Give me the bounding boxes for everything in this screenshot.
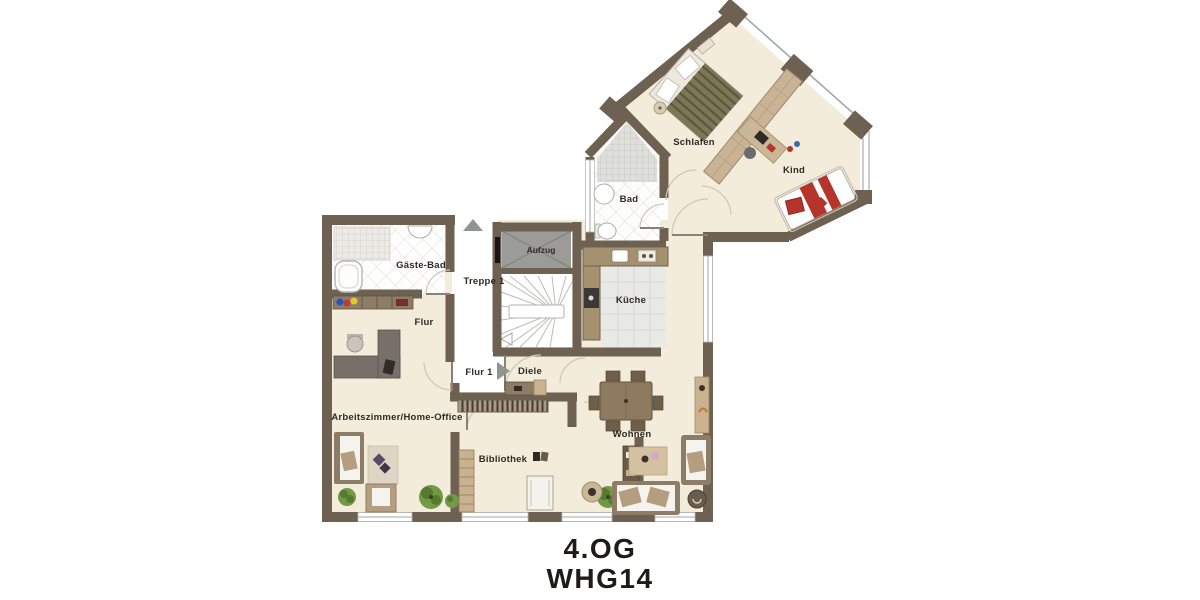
kitchen-floor bbox=[602, 266, 666, 348]
sofa bbox=[612, 481, 680, 515]
room-label-flur: Flur bbox=[415, 317, 434, 328]
floorplan-page: Schlafen Kind Bad Aufzug Treppe 1 Gäste-… bbox=[0, 0, 1200, 600]
office-sofa bbox=[334, 432, 364, 484]
coffee-table bbox=[629, 447, 667, 475]
room-label-kind: Kind bbox=[783, 165, 805, 176]
room-label-gaeste-bad: Gäste-Bad bbox=[396, 260, 446, 271]
lounge-armchair bbox=[681, 435, 711, 485]
sink bbox=[594, 184, 614, 204]
room-label-flur1: Flur 1 bbox=[465, 367, 493, 378]
unit-title: WHG14 bbox=[546, 563, 653, 594]
rug bbox=[368, 446, 398, 484]
entry-sideboard bbox=[505, 380, 546, 395]
room-label-wohnen: Wohnen bbox=[613, 429, 652, 440]
room-label-schlafen: Schlafen bbox=[673, 137, 715, 148]
room-label-arbeitszimmer: Arbeitszimmer/Home-Office bbox=[331, 412, 462, 423]
side-table bbox=[688, 490, 706, 508]
room-label-treppe: Treppe 1 bbox=[463, 276, 505, 287]
elevator-door bbox=[495, 237, 500, 263]
hall-wardrobe bbox=[333, 296, 413, 309]
desk-chair bbox=[347, 336, 363, 352]
desk-chair bbox=[744, 147, 756, 159]
floor-title: 4.OG bbox=[564, 533, 637, 564]
room-label-aufzug: Aufzug bbox=[527, 245, 556, 255]
room-label-bad: Bad bbox=[620, 194, 639, 205]
room-label-diele: Diele bbox=[518, 366, 542, 377]
living-sideboard bbox=[695, 377, 709, 433]
built-in-wardrobe bbox=[458, 400, 548, 412]
room-label-bibliothek: Bibliothek bbox=[479, 454, 528, 465]
toilet bbox=[598, 223, 616, 239]
armchair bbox=[366, 484, 396, 512]
floorplan-canvas: Schlafen Kind Bad Aufzug Treppe 1 Gäste-… bbox=[0, 0, 1200, 600]
room-label-kueche: Küche bbox=[616, 295, 646, 306]
